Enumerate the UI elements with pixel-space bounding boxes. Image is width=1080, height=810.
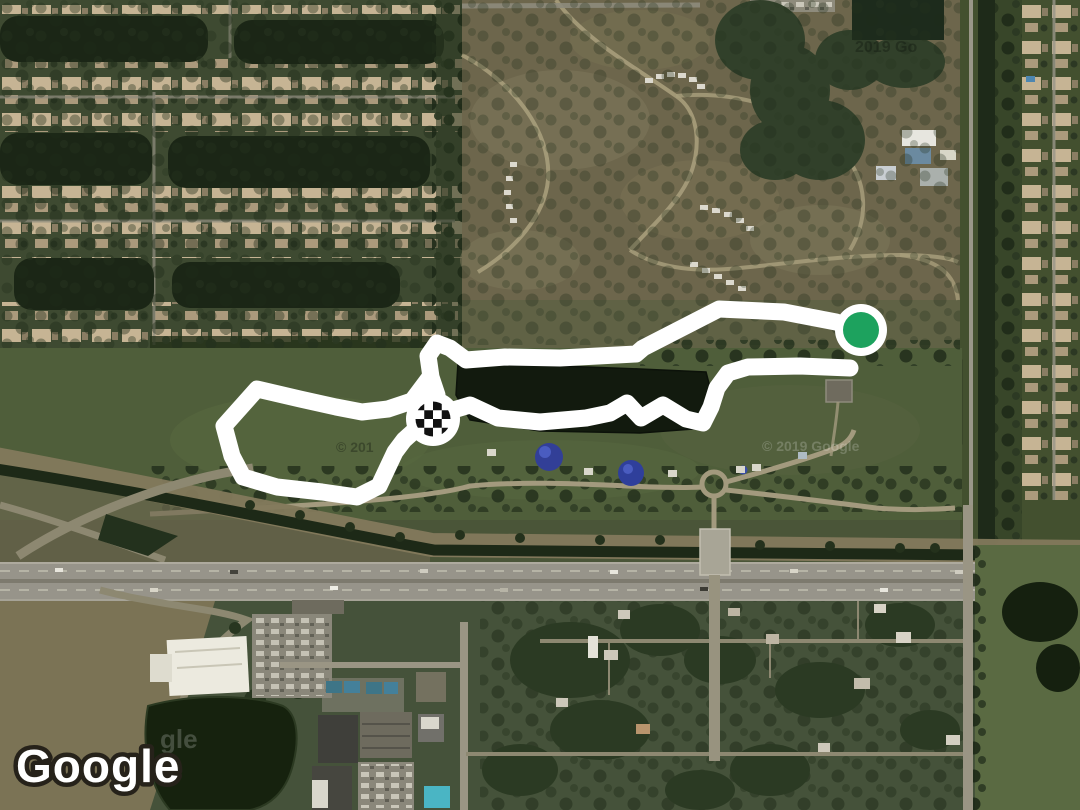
watermark-top-right: 2019 Go [855, 39, 917, 56]
watermark-lake: © 2019 Google [762, 438, 860, 454]
start-marker-dot [843, 312, 879, 348]
parking-lot [826, 380, 852, 402]
map-canvas[interactable]: 2019 Go © 201 © 2019 Google gle Google [0, 0, 1080, 810]
canal-bridge [700, 529, 730, 575]
nw-residential-neighborhood [0, 0, 470, 360]
start-marker [835, 304, 887, 356]
watermark-field: © 201 [336, 439, 374, 455]
google-logo[interactable]: Google [16, 740, 180, 792]
se-green-field [963, 505, 1080, 810]
se-rural [466, 575, 975, 810]
satellite-map: 2019 Go © 201 © 2019 Google gle Google [0, 0, 1080, 810]
finish-marker-checker [416, 402, 451, 437]
finish-marker [406, 392, 460, 446]
sports-courts [322, 678, 404, 712]
